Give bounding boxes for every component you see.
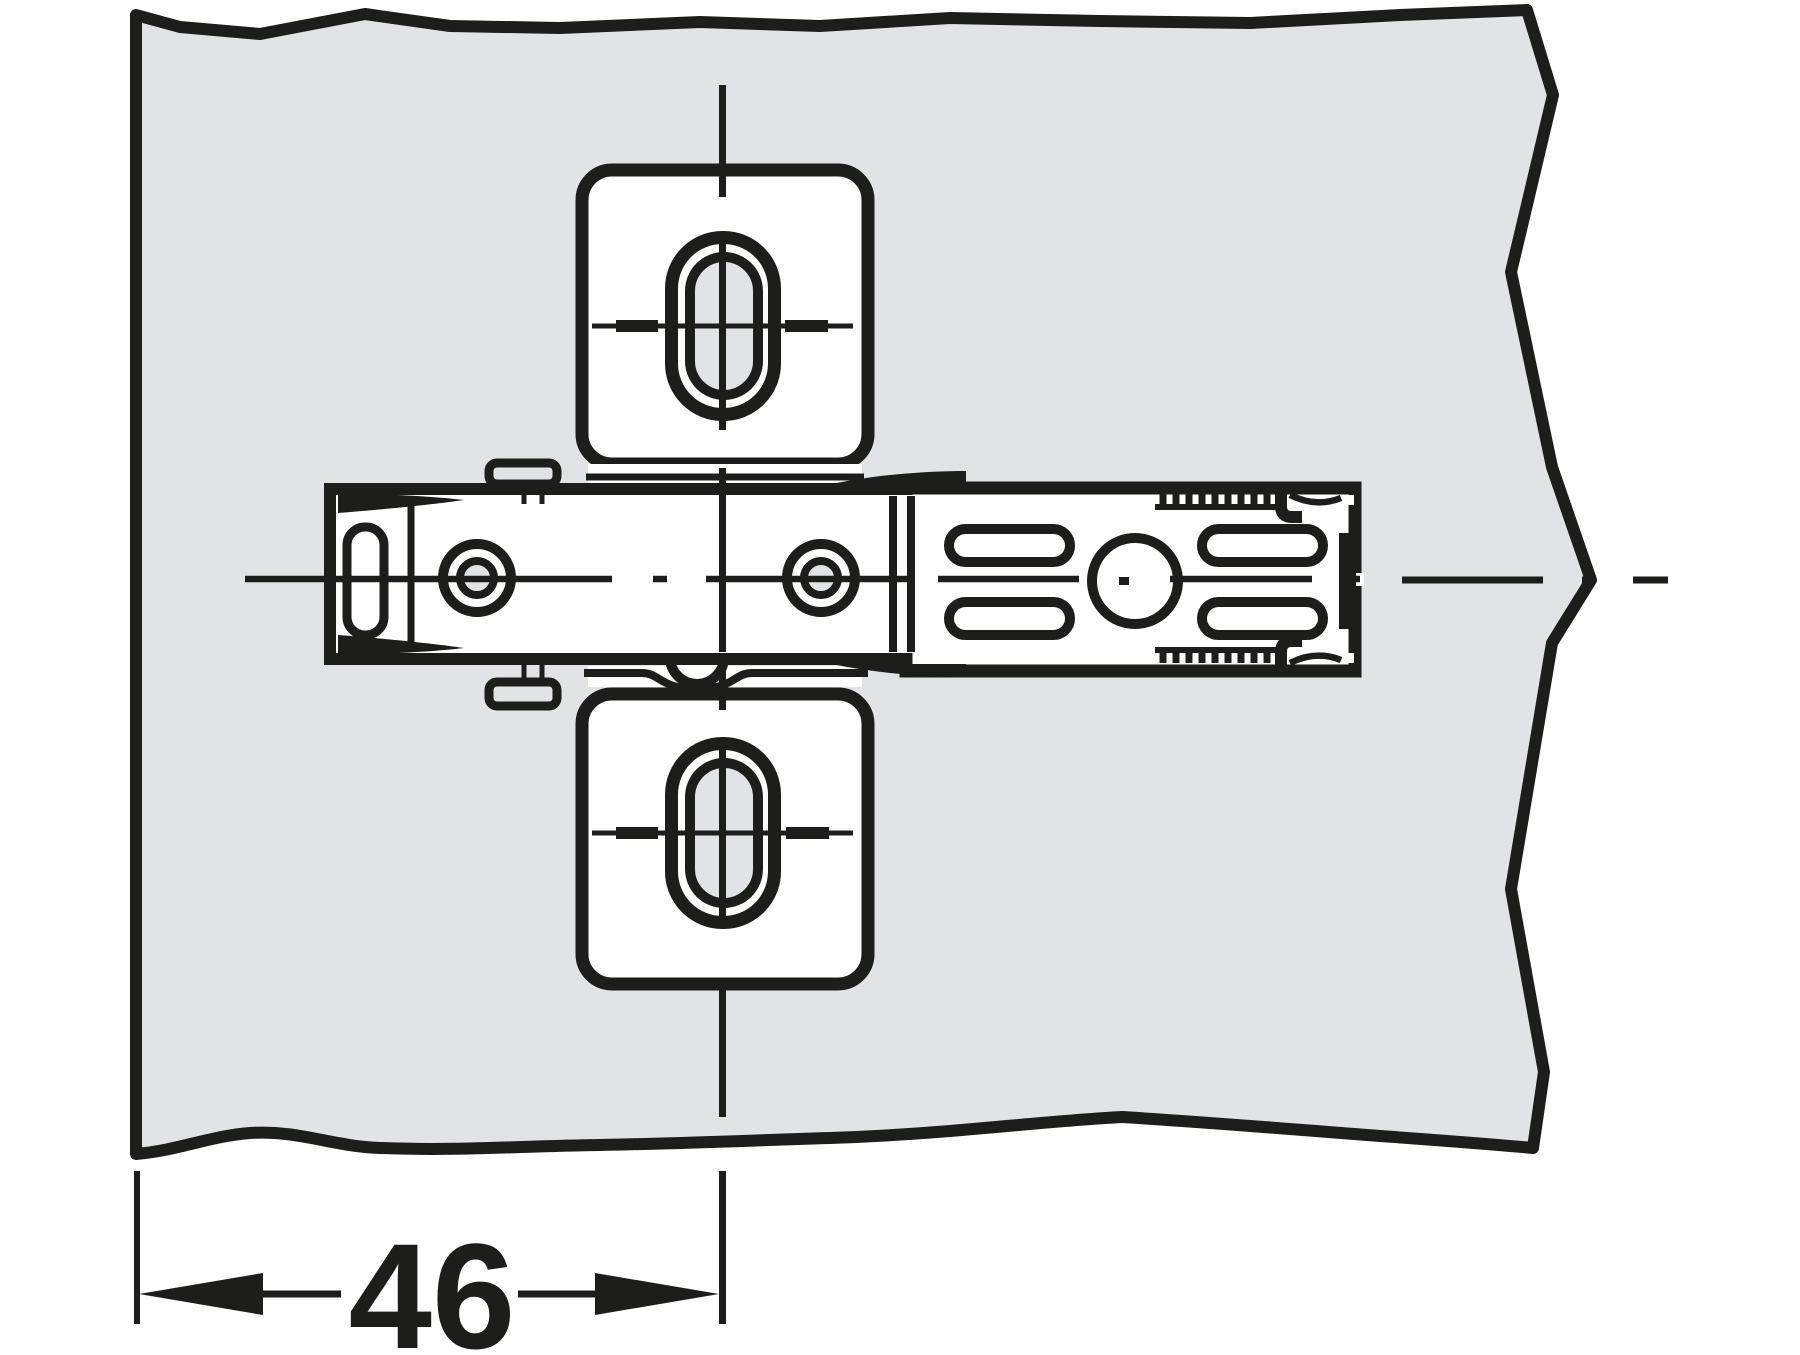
- svg-text:46: 46: [349, 1212, 516, 1350]
